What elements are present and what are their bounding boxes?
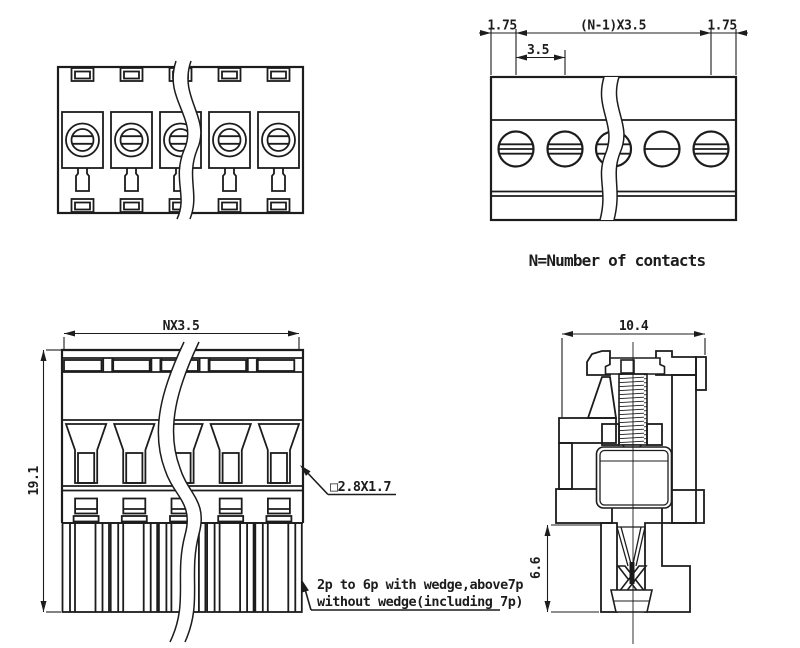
terminal-block-technical-drawing: 1.75 (N-1)X3.5 1.75 3.5 N=Number of cont… xyxy=(0,0,800,648)
plan-screw-5 xyxy=(694,132,729,167)
contacts-note: N=Number of contacts xyxy=(529,251,706,270)
screw-head xyxy=(606,358,665,374)
view-plug-front xyxy=(58,61,303,219)
plan-screw-2 xyxy=(548,132,583,167)
square-hole-note: □2.8X1.7 xyxy=(330,479,391,495)
drawing-canvas: 1.75 (N-1)X3.5 1.75 3.5 N=Number of cont… xyxy=(0,0,800,648)
dim-margin-left: 1.75 xyxy=(487,19,516,34)
wire-cage-outer xyxy=(597,447,672,508)
dim-span: (N-1)X3.5 xyxy=(580,19,646,34)
view-top-plan xyxy=(491,77,736,220)
wedge-note-line1: 2p to 6p with wedge,above7p xyxy=(317,577,523,593)
conductor-bar xyxy=(630,562,635,584)
dim-section-width: 10.4 xyxy=(619,319,649,334)
dim-socket-width: NX3.5 xyxy=(163,319,200,334)
dim-section-height: 6.6 xyxy=(529,556,544,579)
clamp-nut-right xyxy=(647,424,662,445)
plan-dimensions xyxy=(479,29,748,75)
dim-margin-right: 1.75 xyxy=(707,19,736,34)
plan-screw-1 xyxy=(499,132,534,167)
plan-screw-4 xyxy=(645,132,680,167)
wedge-note-line2: without wedge(including 7p) xyxy=(317,594,523,610)
dim-socket-height: 19.1 xyxy=(27,466,42,496)
view-side-section: 10.4 6.6 xyxy=(529,319,706,644)
dim-pitch: 3.5 xyxy=(527,43,549,58)
screw-slot xyxy=(621,360,634,373)
view-socket-front xyxy=(62,342,303,642)
